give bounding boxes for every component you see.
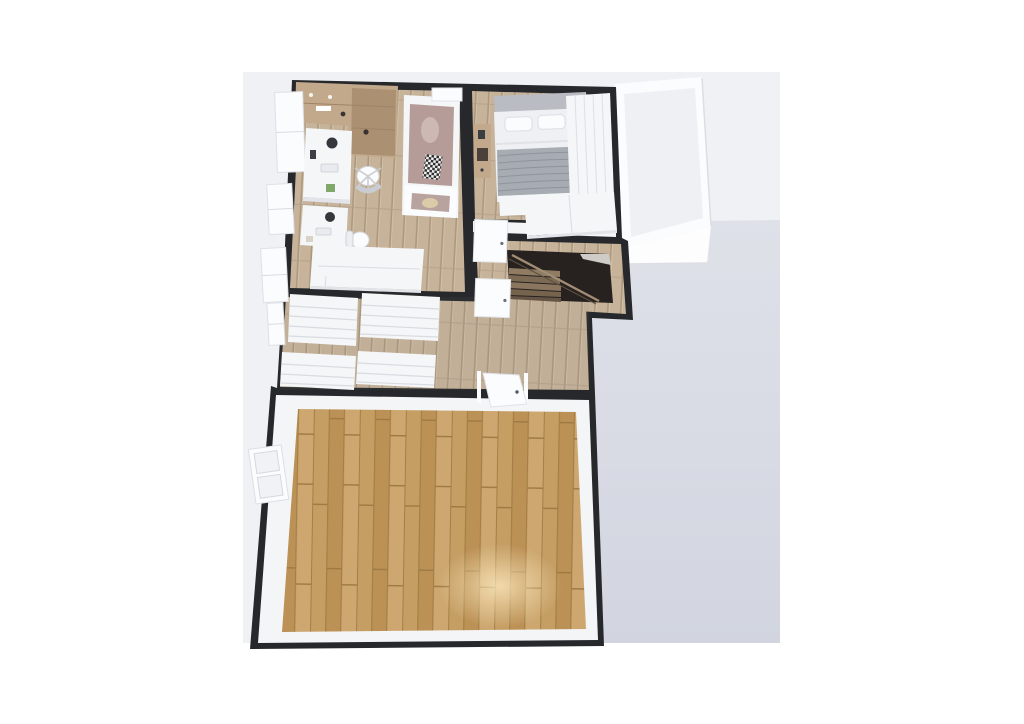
balcony-bottom-edge (626, 263, 707, 264)
shelving-unit-2[interactable] (360, 293, 440, 341)
floor-light-spot (438, 544, 562, 628)
nightstand-drawer (477, 148, 488, 161)
desk2-monitor (325, 212, 335, 222)
desk-2[interactable] (300, 205, 348, 248)
door-c-frame-left (477, 371, 481, 403)
office-window-2[interactable] (267, 183, 295, 234)
office-top-shelf[interactable] (432, 88, 462, 101)
single-bed-pillow (421, 117, 439, 143)
desk-1[interactable] (303, 128, 352, 204)
shelving-unit-4[interactable] (356, 351, 436, 388)
desk1-keyboard (321, 164, 338, 172)
bed-pillow-left (505, 117, 532, 132)
straw-hat (422, 198, 438, 208)
door-a[interactable] (473, 219, 507, 262)
bed-pillow-right (538, 115, 565, 130)
wardrobe-item-white (316, 106, 331, 111)
balcony[interactable] (615, 77, 711, 264)
office-chair-1[interactable] (355, 167, 381, 193)
office-window-1[interactable] (275, 92, 306, 173)
window-pane-bottom (257, 474, 283, 498)
window-pane-top (254, 451, 280, 474)
closet-window[interactable] (267, 303, 285, 346)
nightstand-lamp (478, 130, 485, 139)
desk2-keyboard (316, 228, 331, 235)
floorplanner-stage (0, 0, 1024, 724)
wardrobe-item-light2 (328, 95, 332, 99)
bedroom-dresser-row[interactable] (524, 192, 617, 239)
bedroom-wardrobe-right[interactable] (566, 93, 614, 200)
staircase[interactable] (507, 250, 613, 304)
desk1-lamp (310, 150, 316, 159)
door-c-handle (515, 390, 518, 393)
bigroom-window[interactable] (248, 445, 288, 504)
floorplan-3d-view[interactable] (0, 0, 1024, 724)
single-bed[interactable] (402, 95, 460, 218)
shelving-unit-3[interactable] (280, 352, 356, 390)
door-b[interactable] (474, 278, 510, 317)
chair2-back (346, 231, 353, 247)
balcony-floor (624, 88, 703, 237)
office-window-3[interactable] (261, 247, 289, 302)
craft-table[interactable] (310, 245, 424, 293)
desk1-monitor (327, 138, 338, 149)
wardrobe-item-light (309, 93, 313, 97)
desk2-item (306, 236, 313, 242)
wardrobe-item-dark (341, 112, 346, 117)
wardrobe-item-dark2 (363, 129, 368, 134)
shelving-unit-1[interactable] (288, 294, 358, 346)
office-chair-2[interactable] (346, 231, 369, 248)
nightstand[interactable] (474, 124, 491, 178)
desk1-plant (326, 184, 335, 192)
checkered-throw (422, 154, 442, 180)
